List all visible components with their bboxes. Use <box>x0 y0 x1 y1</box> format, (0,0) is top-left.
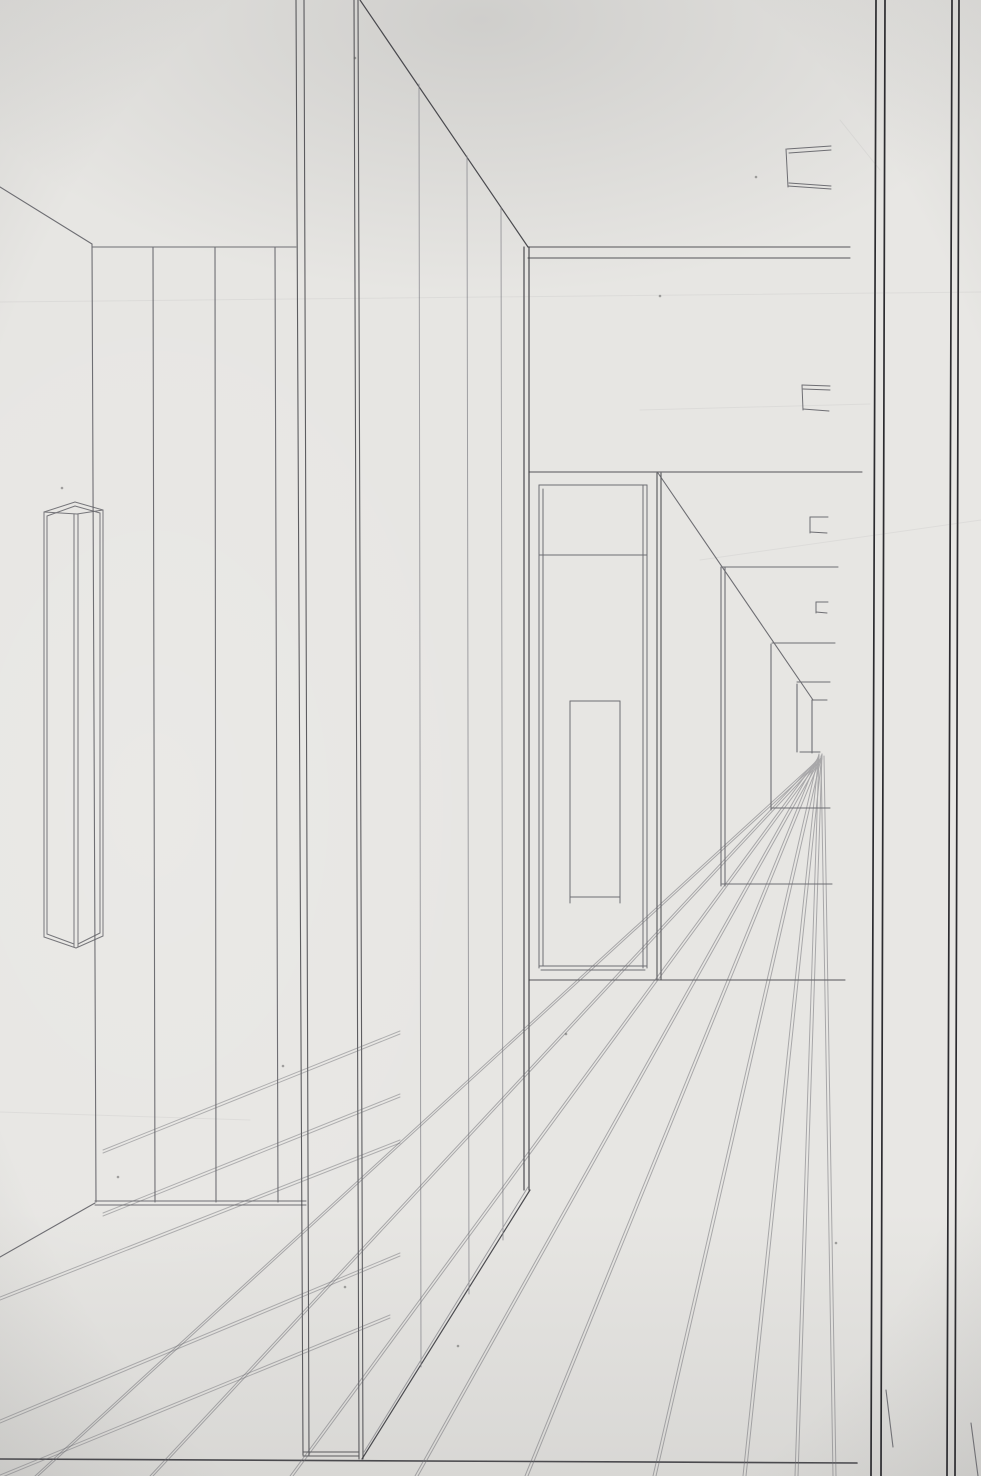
paper-speck <box>755 176 758 179</box>
paper-speck <box>565 1033 568 1036</box>
vignette-overlay <box>0 0 981 1476</box>
perspective-drawing <box>0 0 981 1476</box>
paper-speck <box>61 487 64 490</box>
paper-speck <box>457 1345 460 1348</box>
photo-of-drawing <box>0 0 981 1476</box>
paper-speck <box>117 1176 120 1179</box>
paper-speck <box>282 1065 285 1068</box>
paper-speck <box>659 295 662 298</box>
paper-speck <box>835 1242 838 1245</box>
paper-speck <box>344 1286 347 1289</box>
paper-speck <box>354 57 357 60</box>
